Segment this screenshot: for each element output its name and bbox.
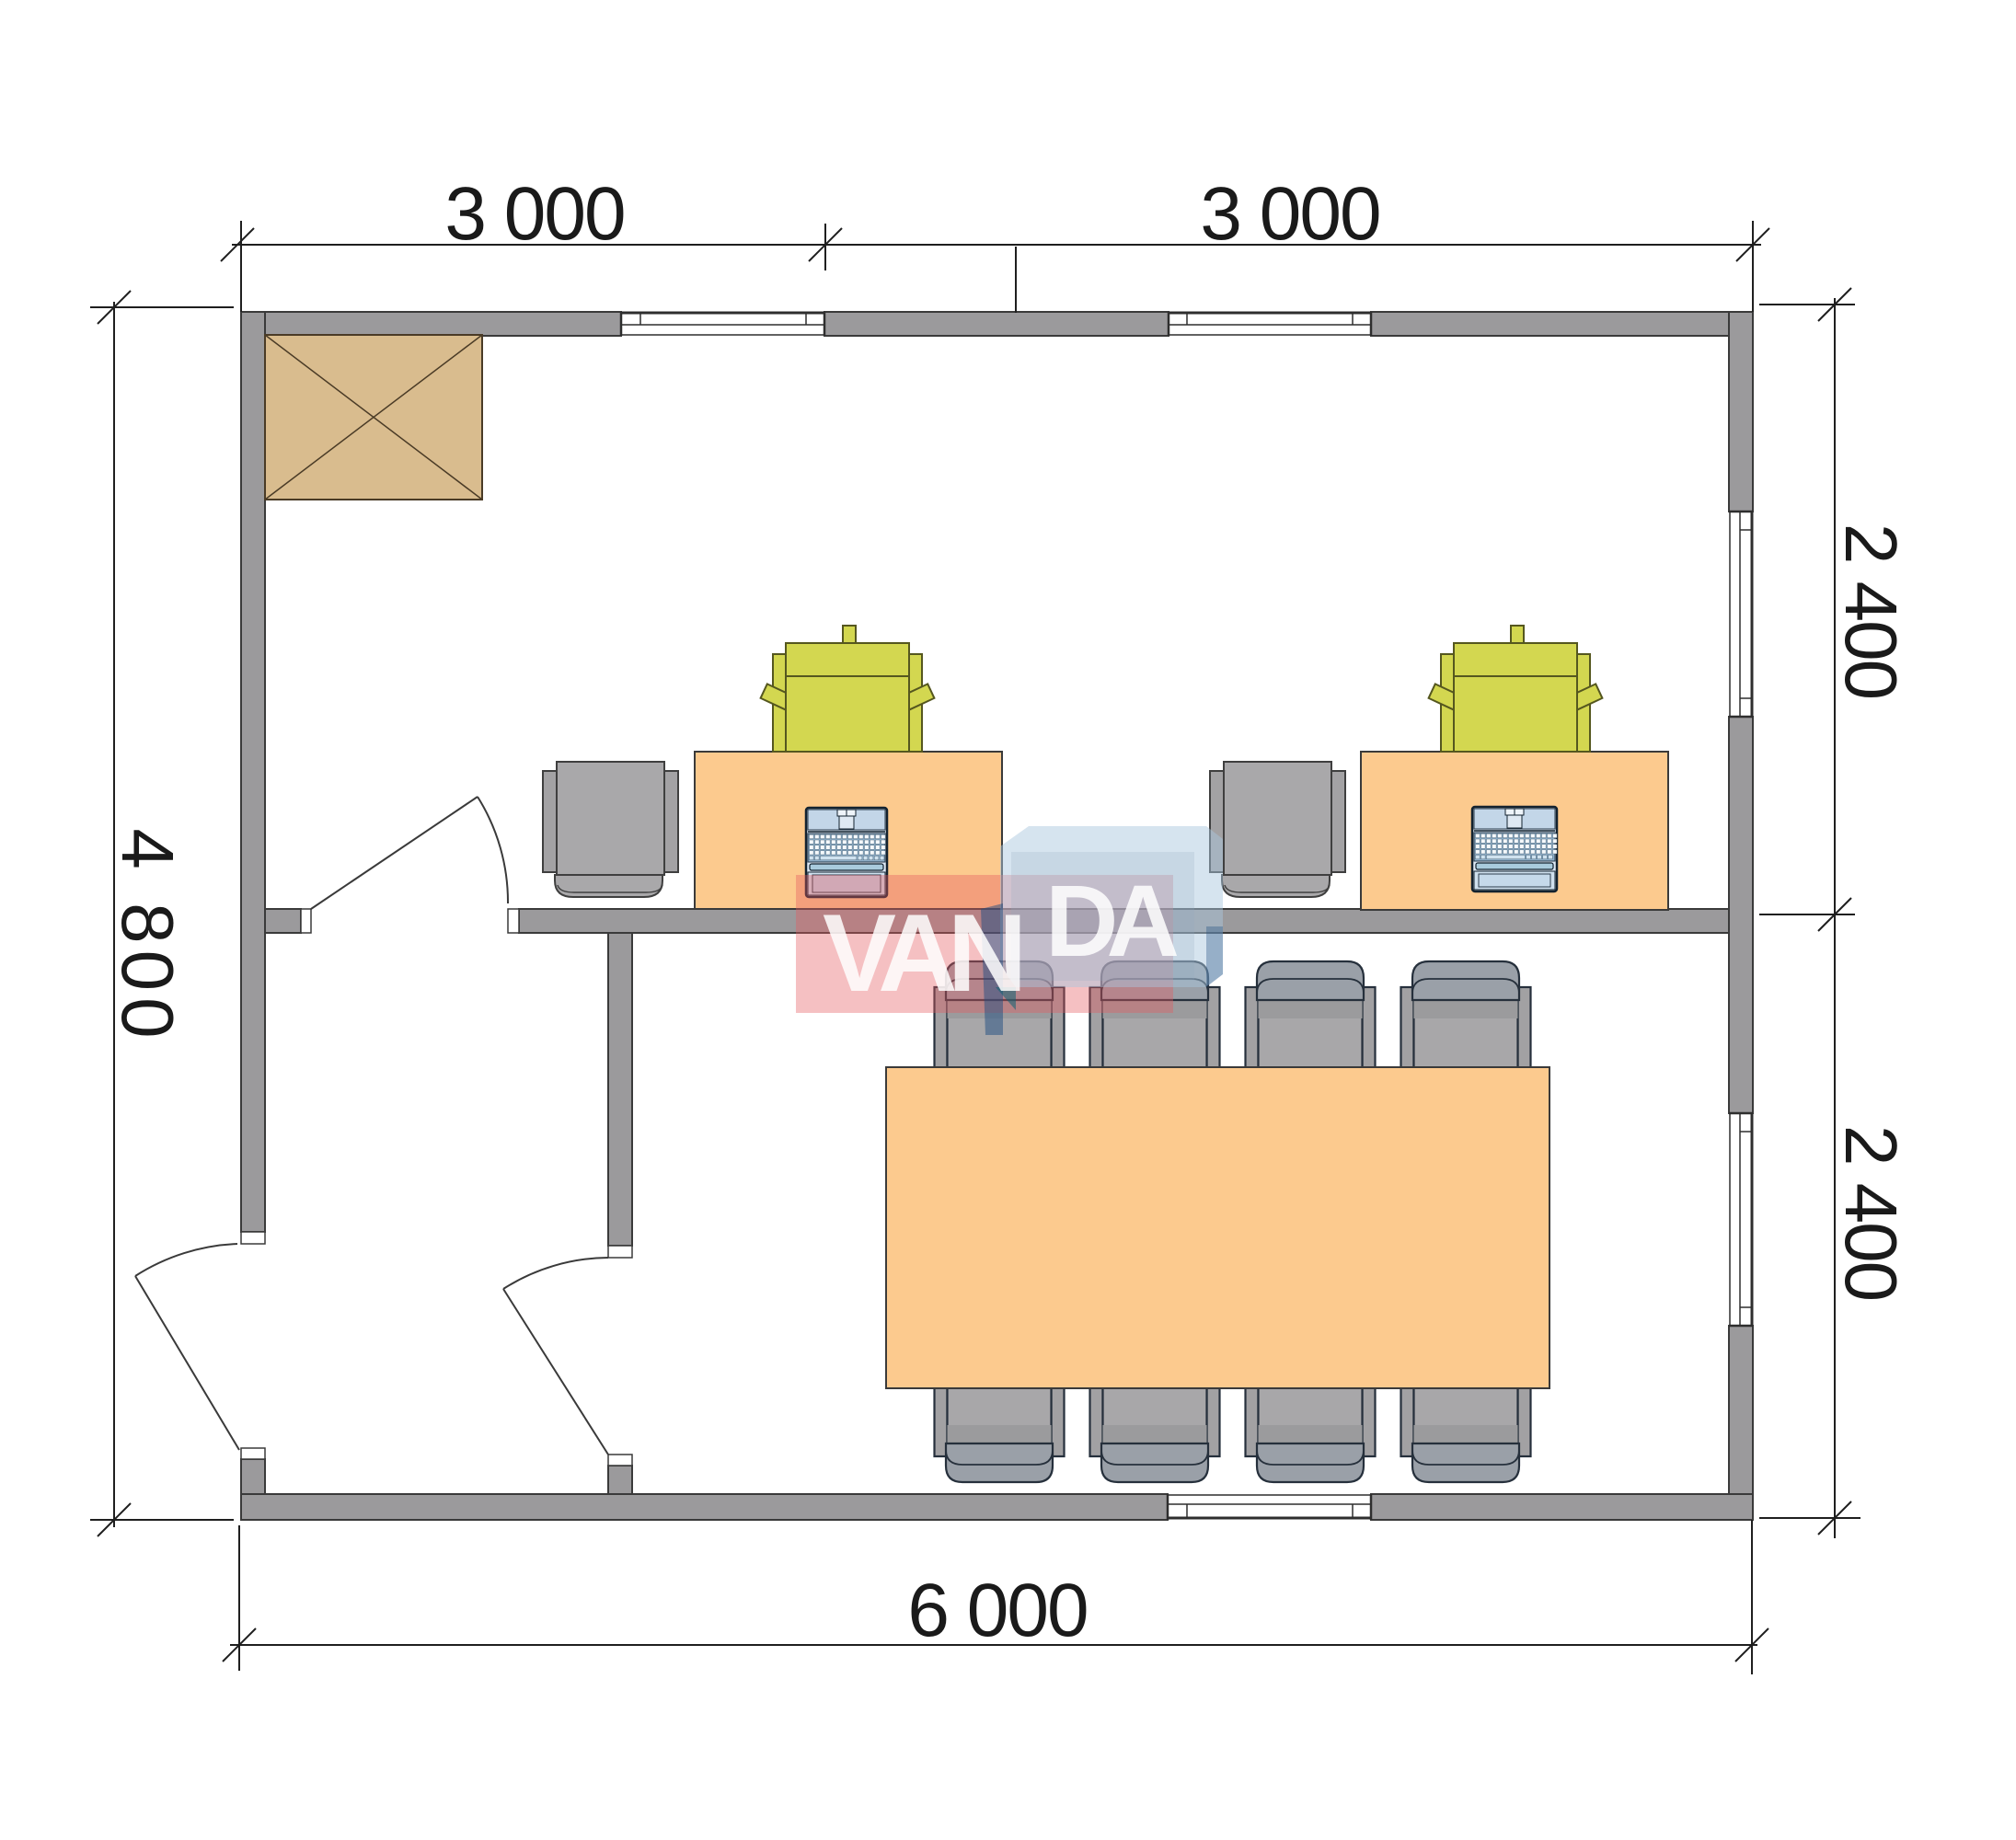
svg-text:6 000: 6 000 [907,1569,1087,1652]
svg-text:3 000: 3 000 [1200,172,1379,256]
svg-text:2 400: 2 400 [1830,1125,1912,1300]
svg-text:DA: DA [1045,865,1177,978]
svg-text:VAN: VAN [823,891,1020,1015]
svg-text:3 000: 3 000 [444,172,624,256]
svg-text:2 400: 2 400 [1830,523,1912,698]
svg-text:4 800: 4 800 [107,828,189,1044]
